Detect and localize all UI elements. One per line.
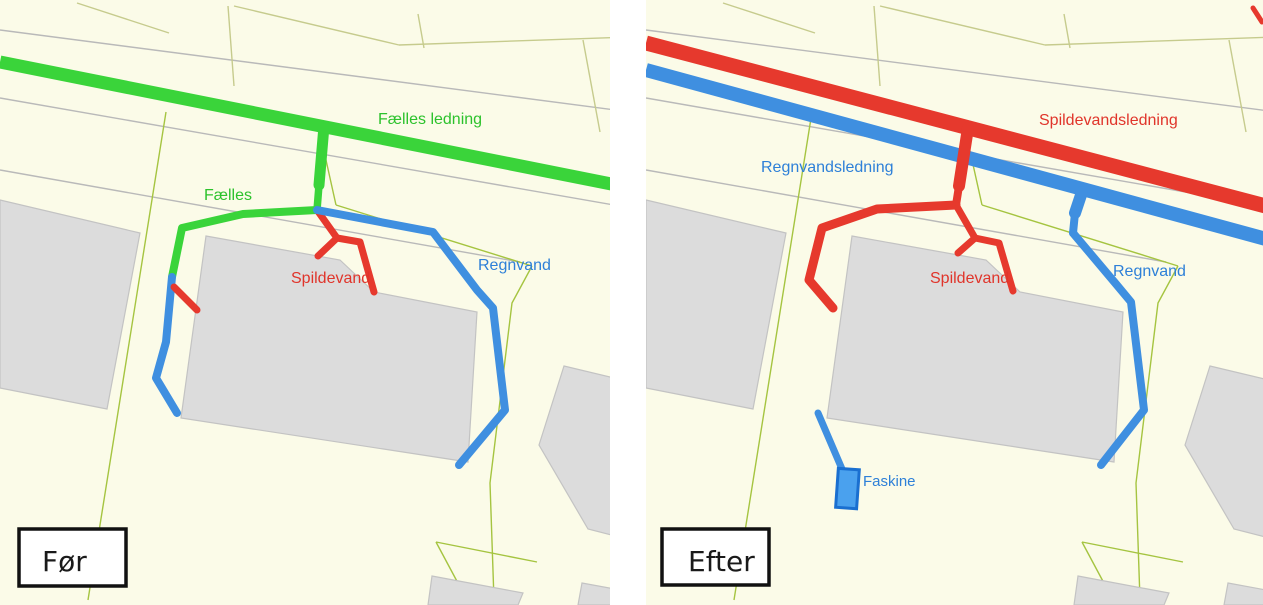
before-after-pipe-diagram: Fælles ledning Fælles Spildevand Regnvan… xyxy=(0,0,1263,605)
soakaway-box xyxy=(836,468,860,508)
label-rain: Regnvand xyxy=(478,257,551,274)
label-common-branch: Fælles xyxy=(204,187,252,204)
before-badge: Før xyxy=(19,529,126,586)
after-badge-label: Efter xyxy=(688,545,755,578)
label-sewage: Spildevand xyxy=(930,270,1009,287)
before-badge-label: Før xyxy=(42,545,87,578)
label-rain-main: Regnvandsledning xyxy=(761,159,894,176)
pipe-common-stub xyxy=(319,126,324,185)
label-common-main: Fælles ledning xyxy=(378,111,482,128)
label-soakaway: Faskine xyxy=(863,473,916,490)
label-sewage-main: Spildevandsledning xyxy=(1039,112,1178,129)
panel-after: Spildevandsledning Regnvandsledning Spil… xyxy=(646,0,1263,605)
label-rain: Regnvand xyxy=(1113,263,1186,280)
after-badge: Efter xyxy=(662,529,769,585)
label-sewage: Spildevand xyxy=(291,270,370,287)
basemap-before xyxy=(0,0,610,605)
panel-before: Fælles ledning Fælles Spildevand Regnvan… xyxy=(0,0,610,605)
